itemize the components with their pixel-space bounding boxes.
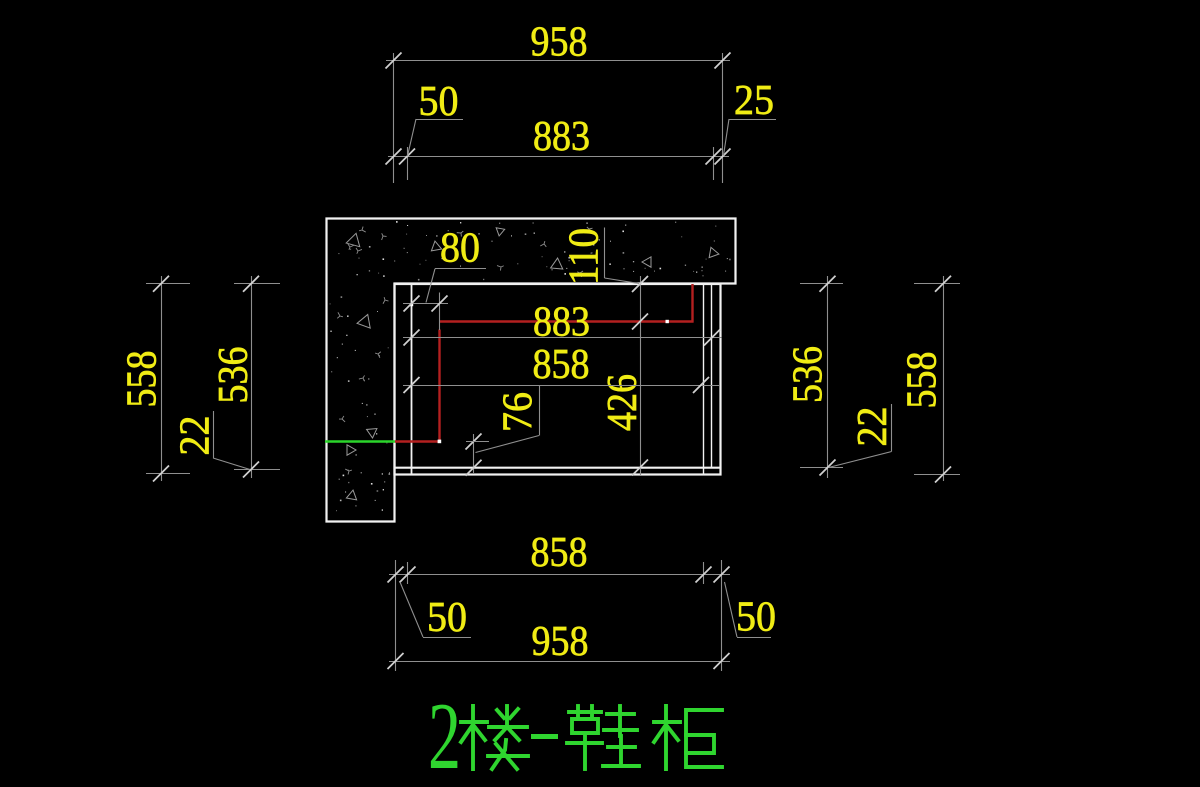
svg-text:110: 110 [561,228,607,285]
svg-text:883: 883 [533,114,590,160]
svg-text:883: 883 [533,299,590,345]
svg-text:426: 426 [600,374,646,431]
svg-text:50: 50 [427,595,467,641]
svg-text:558: 558 [119,351,165,408]
svg-text:80: 80 [440,225,480,271]
svg-text:958: 958 [532,619,589,665]
svg-text:50: 50 [419,79,459,125]
svg-text:536: 536 [785,346,831,403]
svg-text:22: 22 [850,407,896,447]
svg-text:22: 22 [172,416,218,456]
svg-text:558: 558 [899,352,945,409]
svg-text:858: 858 [533,342,590,388]
svg-text:958: 958 [531,19,588,65]
svg-text:76: 76 [495,392,541,432]
svg-text:25: 25 [734,78,774,124]
svg-text:50: 50 [736,594,776,640]
svg-text:2: 2 [428,683,461,787]
svg-text:858: 858 [531,530,588,576]
svg-text:536: 536 [211,347,257,404]
